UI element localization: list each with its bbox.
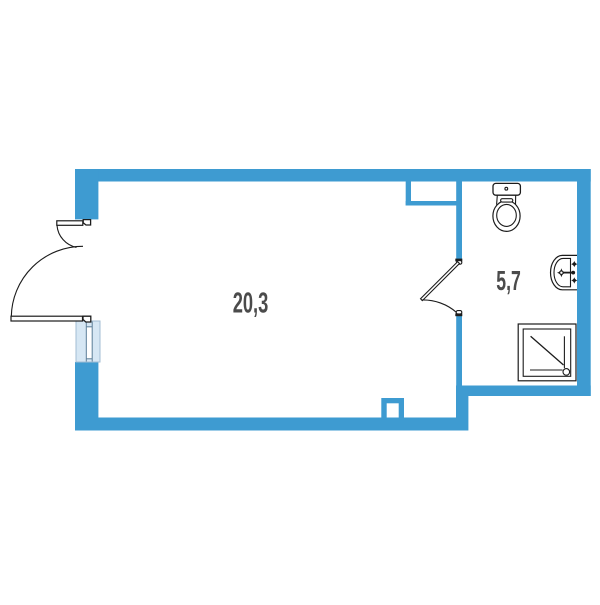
svg-text:5,7: 5,7 — [496, 265, 521, 296]
svg-text:20,3: 20,3 — [233, 287, 269, 319]
